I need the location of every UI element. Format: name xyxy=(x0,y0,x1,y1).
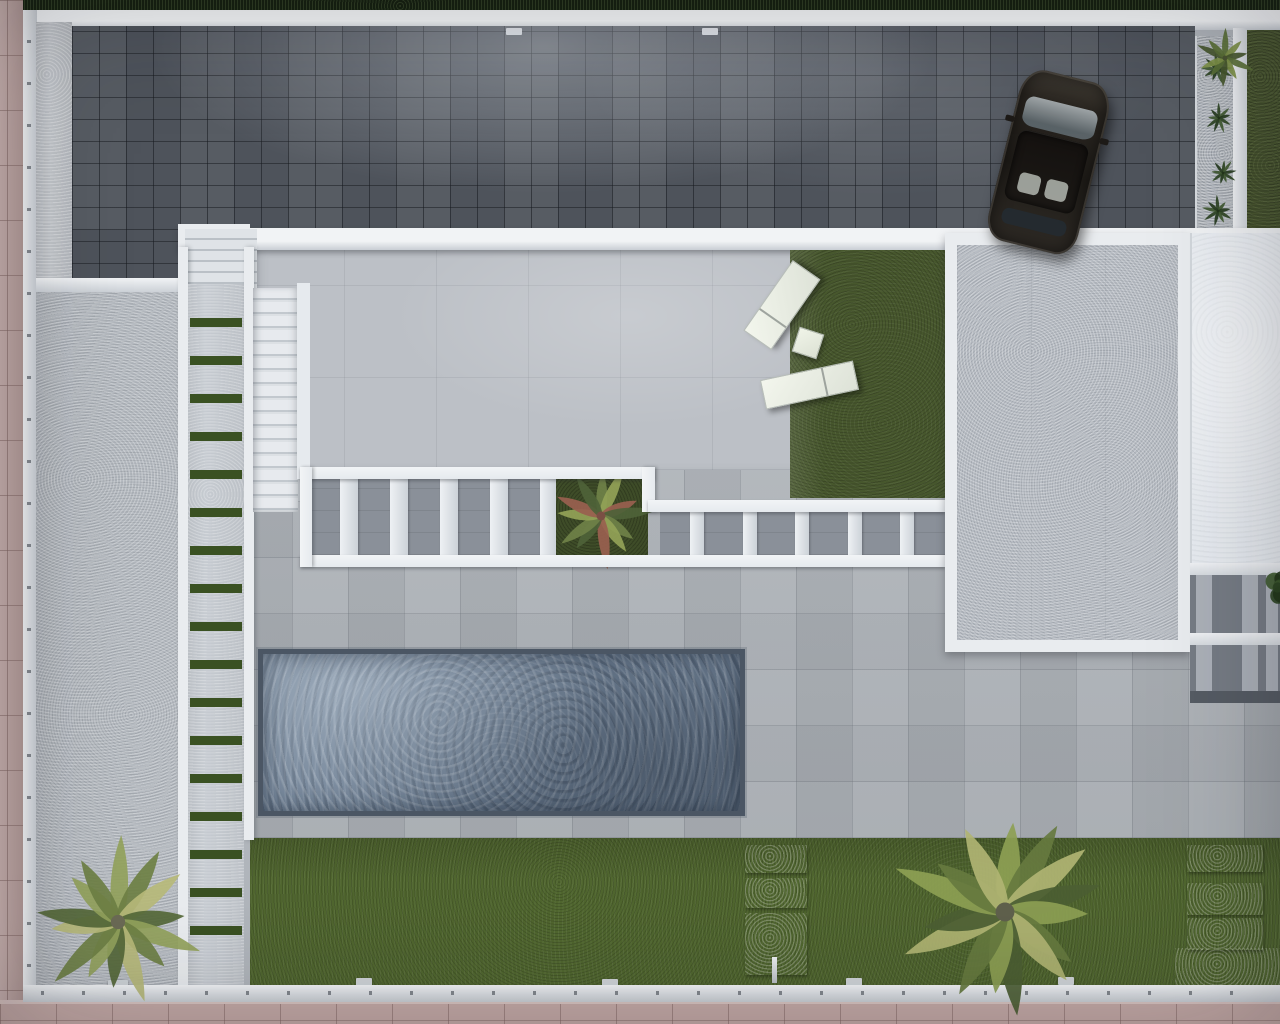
villa-aerial-render: Aerial top-down 3D architectural render … xyxy=(0,0,1280,1024)
render-vignette xyxy=(0,0,1280,1024)
